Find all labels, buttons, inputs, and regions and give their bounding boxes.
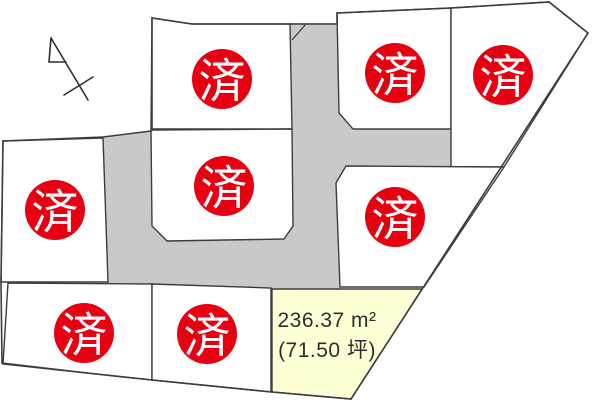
lot-7-sold-label: 済: [61, 309, 108, 362]
lot-8-sold-label: 済: [184, 310, 231, 363]
lot-1-sold-label: 済: [199, 55, 246, 108]
available-lot-area-m2: 236.37 m²: [247, 306, 407, 336]
available-lot-label: 236.37 m² (71.50 坪): [247, 306, 407, 366]
north-arrow-icon: [64, 77, 93, 95]
site-plan: 済済済済済済済済 236.37 m² (71.50 坪): [0, 0, 600, 404]
north-arrow-icon: [49, 38, 51, 62]
lot-5-sold-label: 済: [480, 51, 527, 104]
lot-6-sold-label: 済: [372, 193, 419, 246]
lot-3-sold-label: 済: [32, 186, 79, 239]
available-lot-area-tsubo: (71.50 坪): [247, 336, 407, 366]
road-vertical-west: [103, 131, 152, 286]
lot-2-sold-label: 済: [201, 162, 248, 215]
lot-4-sold-label: 済: [372, 49, 419, 102]
